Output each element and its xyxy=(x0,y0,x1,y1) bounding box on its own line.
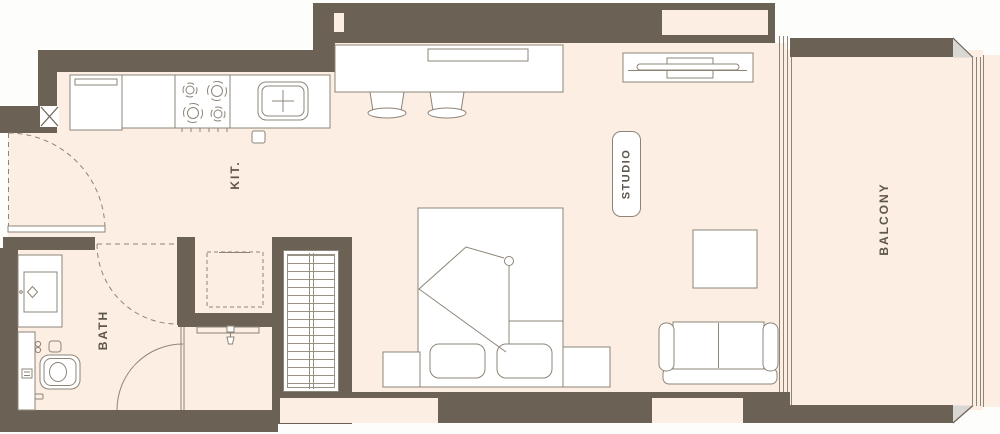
bar-counter xyxy=(335,45,563,92)
door-swing-arc xyxy=(117,344,183,410)
room-label-studio: STUDIO xyxy=(621,149,633,200)
toilet-icon xyxy=(35,341,80,399)
room-label-balcony: BALCONY xyxy=(877,174,891,264)
glass-wall xyxy=(780,36,792,405)
shaft-column-x-icon xyxy=(41,107,58,126)
pillow-icon xyxy=(497,344,552,378)
shower-head-icon xyxy=(227,326,234,332)
bar-stool-icon xyxy=(368,92,466,118)
room-label-bath: BATH xyxy=(96,300,110,360)
bed-icon xyxy=(418,208,563,387)
door-leaf xyxy=(8,226,105,232)
kitchen-sink-icon xyxy=(252,82,308,143)
room-label-kitchen: KIT. xyxy=(228,145,242,205)
room-label-studio-badge: STUDIO xyxy=(612,131,641,217)
pillow-icon xyxy=(430,344,485,378)
fridge-icon xyxy=(70,75,122,130)
balcony-railing xyxy=(953,38,981,423)
nightstand xyxy=(383,352,420,387)
coffee-table xyxy=(693,230,757,288)
vanity-sink-icon xyxy=(18,255,62,327)
shower xyxy=(117,326,259,410)
floor-plan: KIT. STUDIO BATH BALCONY xyxy=(0,0,1000,434)
sofa-icon xyxy=(659,322,778,384)
tv-unit-icon xyxy=(623,53,753,82)
nightstand xyxy=(563,347,610,387)
linework-layer xyxy=(0,0,1000,434)
entry-door xyxy=(8,133,105,232)
bath-side-shelf xyxy=(18,332,35,410)
washer-space-dashed xyxy=(207,252,263,307)
floor-drain xyxy=(252,131,265,143)
door-swing-arc xyxy=(9,133,106,229)
